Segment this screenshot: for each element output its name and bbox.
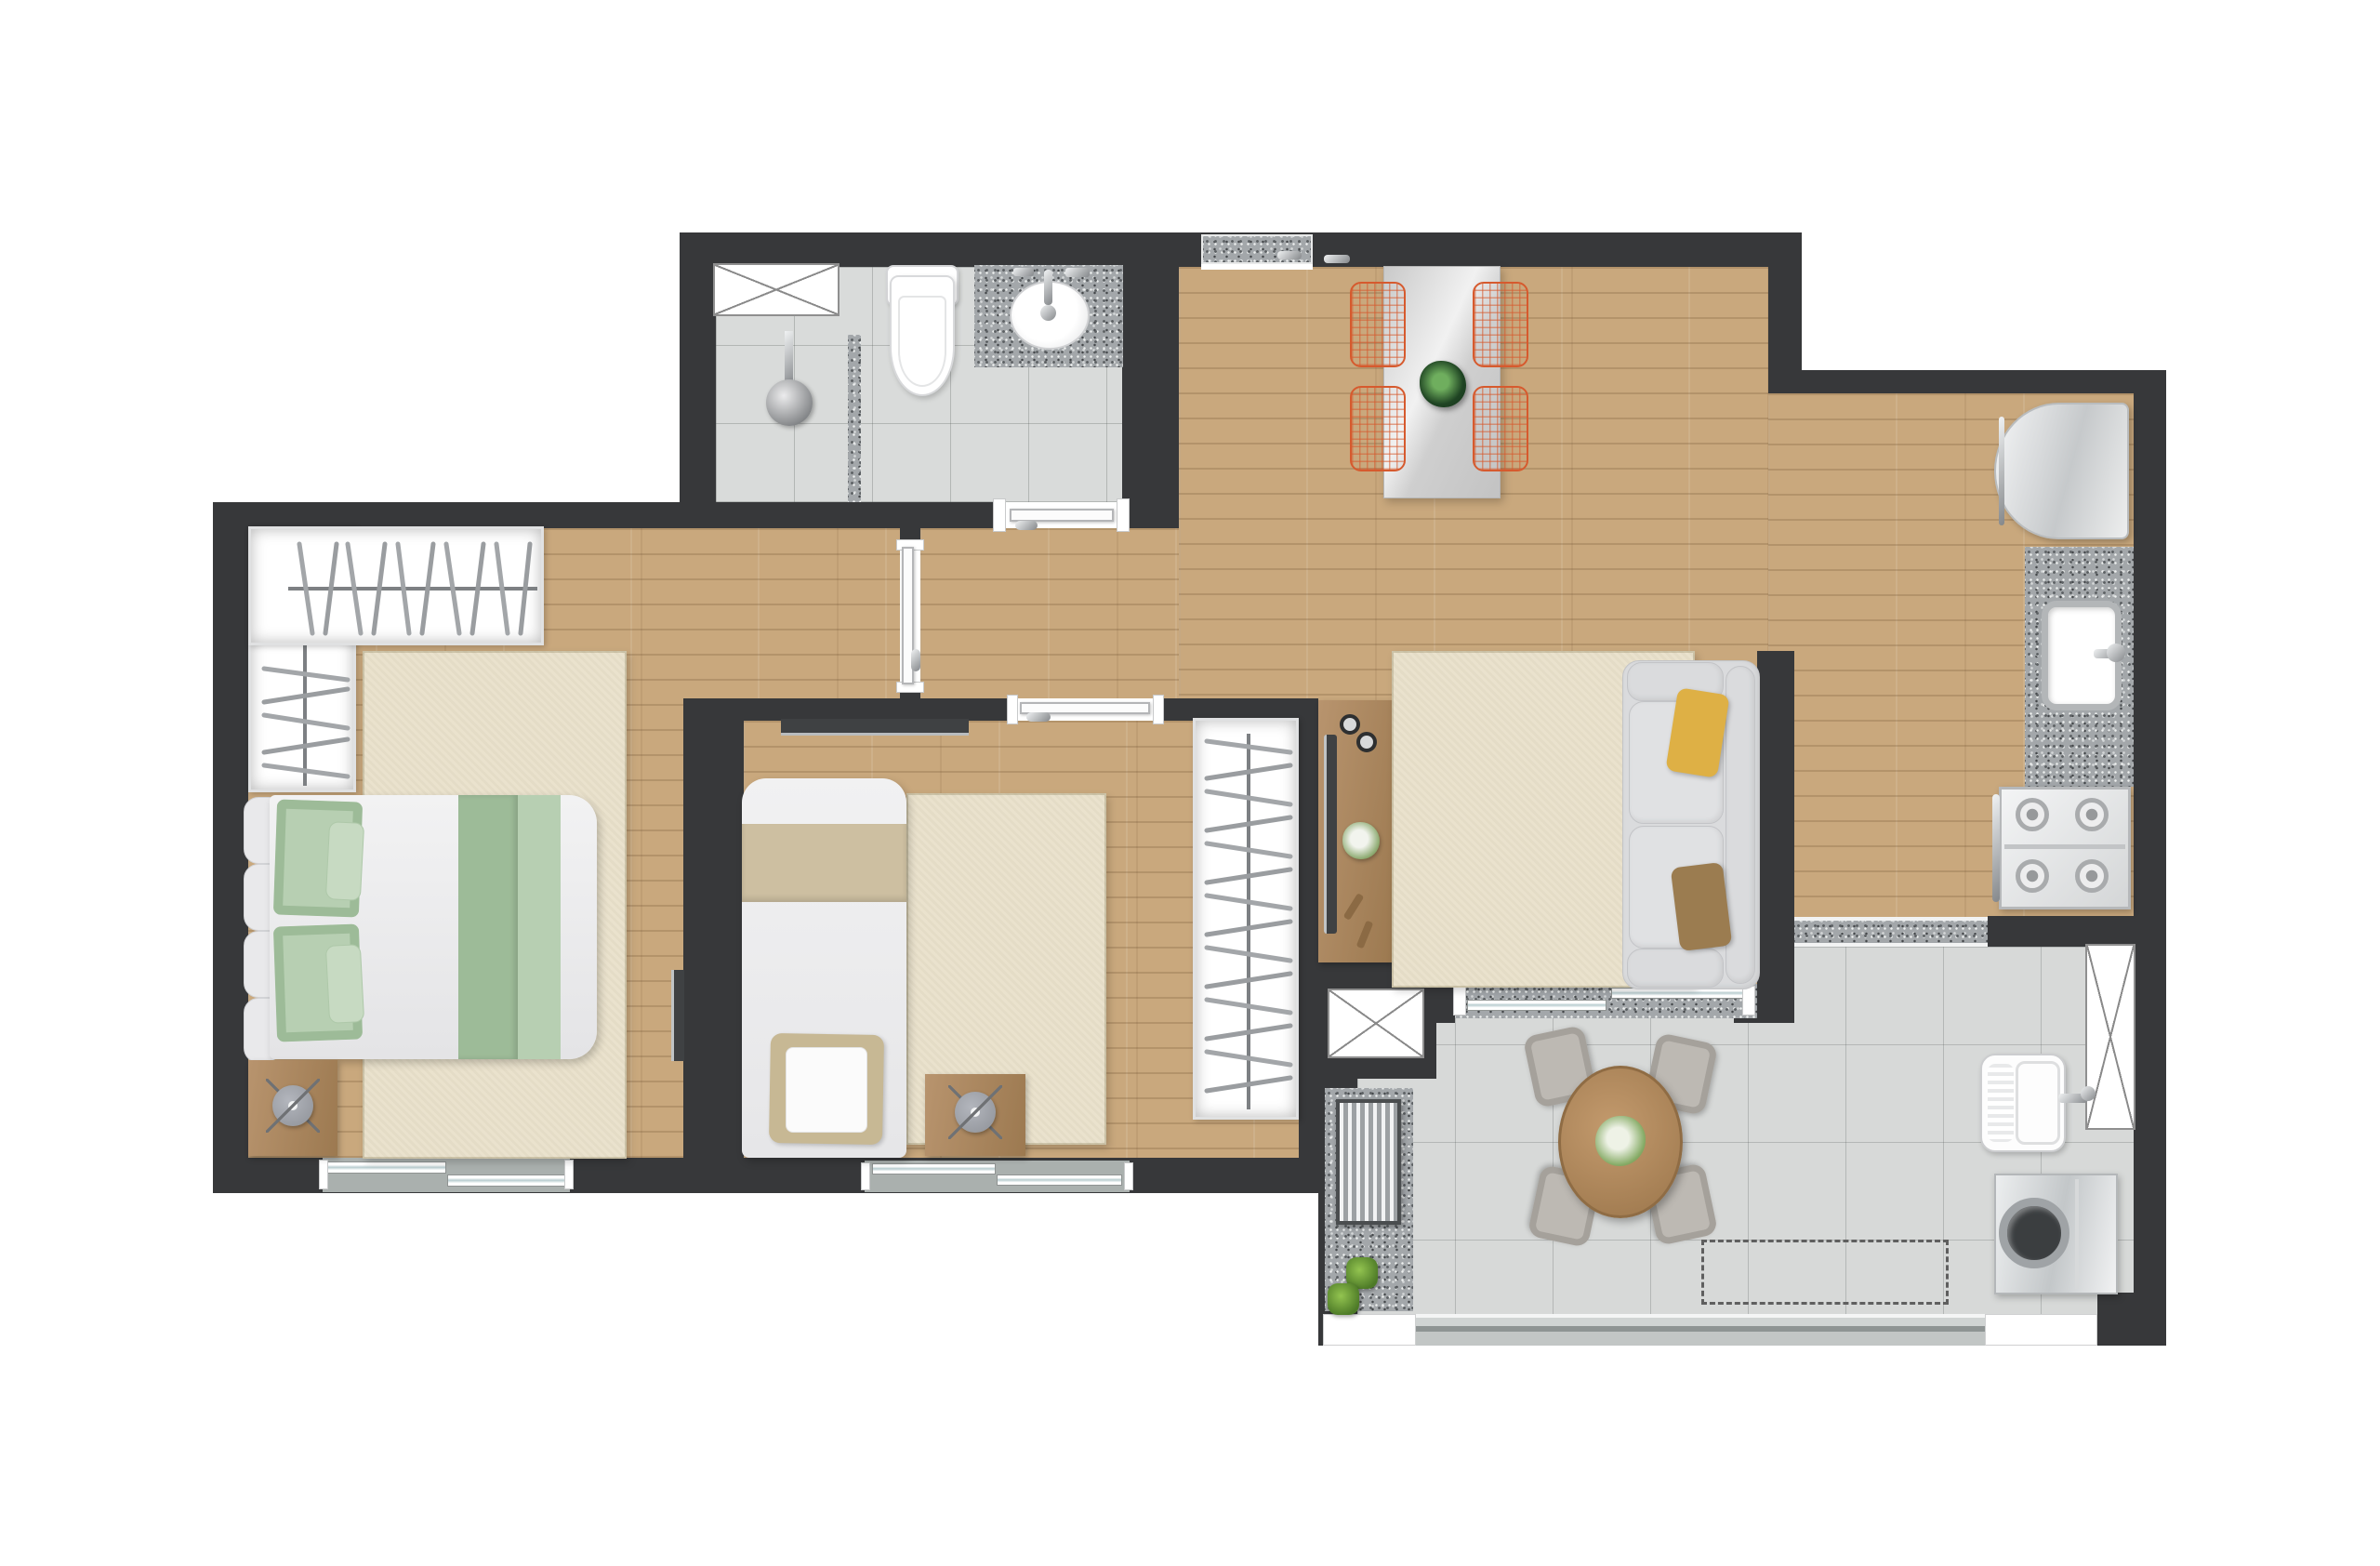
door-jamb <box>1007 695 1018 724</box>
plant-icon <box>1328 1283 1359 1315</box>
window-handle-icon <box>1277 251 1302 259</box>
speaker-icon <box>1356 732 1377 752</box>
wall-bedrooms-divider <box>683 721 744 1193</box>
wall-bathroom-right <box>1122 232 1179 528</box>
dining-window-sill <box>1201 234 1313 264</box>
vent-shaft-icon <box>1328 989 1424 1058</box>
wall-living-right <box>1757 651 1794 1023</box>
fridge-handle-icon <box>1999 417 2004 525</box>
living-tv-icon <box>1324 735 1337 934</box>
bed1-cushion <box>325 821 364 901</box>
door-jamb <box>1153 695 1164 724</box>
window-jamb <box>319 1160 328 1189</box>
hangers-icon <box>251 529 547 648</box>
bedroom1-window-pane <box>447 1174 566 1187</box>
door-handle-icon <box>1015 521 1038 530</box>
shower-divider <box>848 335 861 502</box>
dining-chair <box>1473 386 1528 471</box>
hall-floor <box>920 528 1179 698</box>
bed1-runner <box>518 795 561 1059</box>
bed2-pillow <box>786 1047 867 1133</box>
wall-service-corner <box>2097 1293 2166 1346</box>
dining-chair <box>1350 282 1406 367</box>
kitchen-faucet-base <box>2107 644 2125 662</box>
bathroom-door-leaf <box>1010 509 1114 522</box>
future-cabinet-outline <box>1701 1240 1949 1305</box>
stove-burner-icon <box>2016 798 2049 831</box>
hangers-icon <box>1196 721 1302 1122</box>
stove-divider <box>2004 844 2125 849</box>
dining-chair <box>1473 282 1528 367</box>
dining-chair <box>1350 386 1406 471</box>
shower-head-icon <box>766 379 813 426</box>
toilet-bowl-inner <box>898 296 946 387</box>
bedroom1-tv-icon <box>671 970 684 1061</box>
ac-unit-icon <box>1336 1099 1401 1225</box>
wall-step <box>1768 232 1802 393</box>
bed1-runner <box>458 795 518 1059</box>
brown-pillow <box>1671 862 1733 951</box>
dining-plant-icon <box>1420 361 1466 407</box>
bedroom2-wardrobe <box>1193 718 1299 1120</box>
speaker-icon <box>1340 714 1360 735</box>
bathroom-window-icon <box>713 263 840 316</box>
window-jamb <box>1453 986 1466 1015</box>
stool-seat <box>955 1092 996 1133</box>
kitchen-threshold <box>1794 917 1988 947</box>
sofa-armrest <box>1627 949 1724 988</box>
wall-bathroom-left <box>680 232 716 528</box>
door-jamb <box>1117 498 1130 532</box>
vanity-faucet-icon <box>1044 270 1052 305</box>
floor-plan <box>0 0 2380 1566</box>
vanity-faucet-base <box>1040 305 1056 321</box>
window-jamb <box>1124 1162 1133 1190</box>
window-jamb <box>861 1162 870 1190</box>
service-window-icon <box>2085 944 2135 1130</box>
window-jamb <box>564 1160 574 1189</box>
service-sill-left <box>1323 1314 1416 1346</box>
window-jamb <box>1742 986 1755 1015</box>
wall-kitchen-bottom <box>1988 916 2134 947</box>
bedroom2-window-pane <box>872 1163 996 1174</box>
wall-kitchen-top <box>1802 370 2166 393</box>
bed2-runner-band <box>742 824 906 902</box>
stove-handle-icon <box>1992 794 2000 902</box>
service-sill-right <box>1985 1314 2097 1346</box>
stove-burner-icon <box>2075 859 2109 893</box>
door-handle-icon <box>1026 712 1051 722</box>
window-handle-icon <box>1324 255 1350 263</box>
shower-arm-icon <box>785 331 793 387</box>
bedroom2-stool <box>948 1085 1002 1139</box>
soap-dish-icon <box>1065 268 1090 277</box>
living-slider-pane <box>1467 1000 1606 1011</box>
wall-right <box>2134 370 2166 1346</box>
door-jamb <box>993 498 1006 532</box>
wall-bedroom2-right <box>1299 698 1318 1193</box>
dining-window-frame <box>1201 264 1313 270</box>
bedroom2-window-pane <box>997 1174 1122 1186</box>
laundry-tank-ribs <box>1988 1064 2014 1142</box>
bed1-cushion <box>325 944 364 1024</box>
tank-faucet-knob <box>2081 1086 2096 1101</box>
console-flowers-icon <box>1342 822 1380 859</box>
washer-door-icon <box>1999 1198 2069 1268</box>
bedroom1-stool <box>266 1079 320 1133</box>
stove-burner-icon <box>2016 859 2049 893</box>
bedroom1-window-pane <box>327 1161 446 1174</box>
soap-dish-icon <box>1013 268 1034 276</box>
door-handle-icon <box>911 649 920 671</box>
service-glazed-rail <box>1416 1314 1985 1346</box>
wardrobe-open-horizontal <box>248 526 544 645</box>
laundry-tank-basin <box>2016 1061 2060 1145</box>
bedroom2-tv-panel-icon <box>781 719 969 736</box>
fridge <box>1994 403 2129 539</box>
washer-lid-line <box>2075 1179 2079 1289</box>
stove-burner-icon <box>2075 798 2109 831</box>
stool-seat <box>272 1085 313 1126</box>
